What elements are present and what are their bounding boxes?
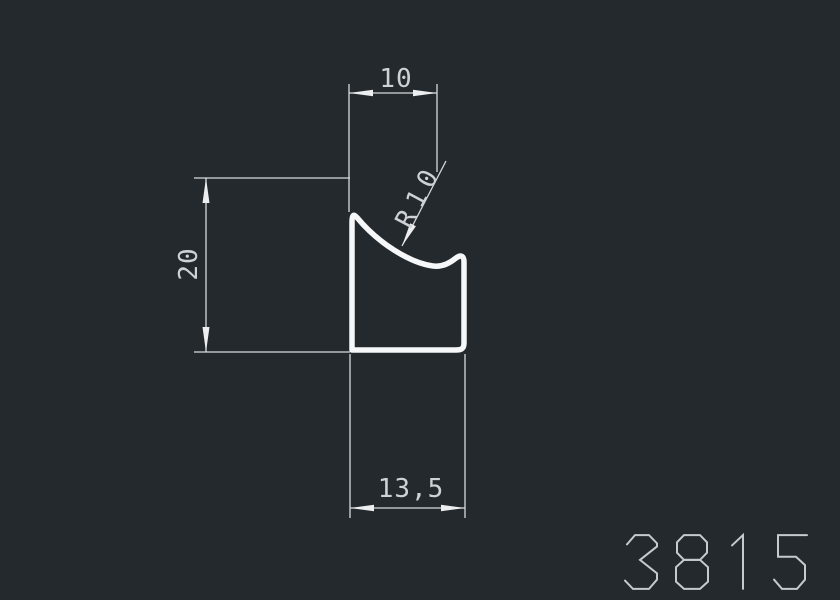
product-number-digit xyxy=(732,535,743,589)
arrow-top-width-left xyxy=(349,90,373,96)
arrow-bottom-width-left xyxy=(350,505,374,511)
arrow-top-width-right xyxy=(413,90,437,96)
dimension-label-height: 20 xyxy=(174,247,204,280)
technical-drawing-svg xyxy=(0,0,840,600)
dimension-arrows xyxy=(203,90,466,511)
product-number-digit xyxy=(625,535,657,589)
product-number-digit xyxy=(774,535,807,589)
arrow-height-top xyxy=(203,178,210,203)
dimension-label-bottom-width: 13,5 xyxy=(378,474,445,504)
arrow-bottom-width-right xyxy=(441,505,465,511)
dimension-lines xyxy=(194,84,465,518)
product-number-digit xyxy=(677,535,707,560)
drawing-canvas: 10 20 13,5 R10 xyxy=(0,0,840,600)
dimension-label-top-width: 10 xyxy=(379,64,412,94)
arrow-height-bottom xyxy=(203,327,210,352)
product-number-digit xyxy=(676,560,708,589)
product-number xyxy=(625,535,807,589)
